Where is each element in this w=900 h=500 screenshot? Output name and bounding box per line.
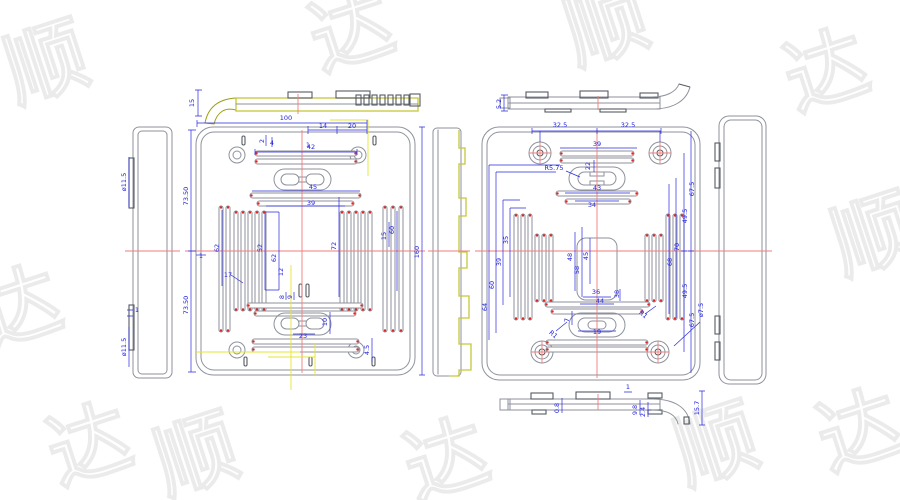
watermark-glyph: 顺 [663,387,771,500]
dimension-label: 100 [280,114,292,122]
slat-end-marker [362,211,364,213]
dimension-label: 32.5 [621,121,635,129]
dimension-label: 60 [388,226,396,234]
slat-end-marker [400,329,402,331]
slat-end-marker [360,304,362,306]
dimension-label: 49.5 [681,284,689,298]
dimension-label: 45 [582,252,590,260]
slat-end-marker [249,211,251,213]
dimension-label: 52 [256,244,264,252]
dimension-label: 160 [413,246,421,258]
slat-end-marker [529,317,531,319]
dimension-label: 4.5 [363,345,371,355]
watermark-glyph: 达 [36,387,144,500]
slat-end-marker [355,211,357,213]
dimension-label: R5.75 [545,164,564,172]
slat-end-marker [660,299,662,301]
part2-top-profile-view [500,84,690,112]
slat-end-marker [263,211,265,213]
dimension-label: 70 [673,243,681,251]
dimension-label: 17 [224,271,232,279]
dimension-label: 15 [380,232,388,240]
slat-end-marker [550,234,552,236]
dimension-label: 20 [348,122,356,130]
dimension-label: ø11.5 [120,173,128,191]
slat-end-marker [355,308,357,310]
slat-end-marker [674,317,676,319]
dimension-label: 43 [593,184,601,192]
slat-end-marker [227,206,229,208]
slat-end-marker [522,317,524,319]
slat-end-markers [220,152,683,350]
slat-end-marker [257,202,259,204]
slat-end-marker [529,214,531,216]
slat-end-marker [645,341,647,343]
dimension-label: 35 [502,236,510,244]
dimension-label: 19 [593,328,601,336]
slat-end-marker [356,340,358,342]
slat-end-marker [250,194,252,196]
watermark-glyph: 达 [393,402,501,500]
slat-end-marker [247,304,249,306]
dimension-label: 9.8 [631,405,639,415]
slat-end-marker [681,317,683,319]
slat-end-marker [341,308,343,310]
dimension-label: 38 [613,290,621,298]
slat-end-marker [550,299,552,301]
slat-end-marker [220,206,222,208]
dimension-label: 8 [278,295,286,299]
slat-end-marker [220,329,222,331]
dimension-label: 68 [666,258,674,266]
slat-end-marker [543,234,545,236]
slat-end-marker [543,299,545,301]
slat-end-marker [351,202,353,204]
slat-end-marker [565,200,567,202]
part1-front-view [185,120,425,390]
dimension-label: 67.5 [688,313,696,327]
dimension-label: 45 [309,183,317,191]
slat-end-marker [358,194,360,196]
slat-end-marker [369,211,371,213]
dimension-label: 48 [566,253,574,261]
slat-end-marker [546,341,548,343]
slat-end-marker [242,211,244,213]
slat-end-marker [235,308,237,310]
watermark-glyph: 达 [0,250,73,367]
dimension-label: 72 [330,242,338,250]
dimension-label: 15.7 [693,401,701,415]
slat-end-marker [235,211,237,213]
slat-end-marker [362,308,364,310]
dimension-label: 58 [573,266,581,274]
slat-end-marker [631,152,633,154]
dimension-label: ø11.5 [120,338,128,356]
slat-end-marker [369,308,371,310]
dimension-label: 64 [481,303,489,311]
slat-end-marker [640,310,642,312]
dimension-label: 1 [135,306,139,314]
slat-end-marker [249,308,251,310]
dimension-label: 23 [299,332,307,340]
slat-end-marker [646,299,648,301]
watermark-glyph: 顺 [553,0,661,84]
dimension-label: 0.8 [553,403,561,413]
slat-end-marker [392,329,394,331]
dimension-label: 12 [277,268,285,276]
dimension-label: 9 [286,295,294,299]
slat-end-marker [546,348,548,350]
slat-end-marker [384,206,386,208]
slat-end-marker [384,329,386,331]
dimension-label: 42 [307,143,315,151]
part2-side-view-inner [428,128,471,376]
slat-end-marker [645,348,647,350]
dimension-label: 1 [199,252,203,260]
slat-end-marker [227,329,229,331]
dimension-label: 39 [593,140,601,148]
slat-end-marker [515,214,517,216]
dimension-label: 67.5 [688,182,696,196]
slat-end-marker [631,159,633,161]
dimension-label: 44 [596,297,604,305]
dimension-label: 39 [495,258,503,266]
dimension-label: ø7.5 [697,303,705,317]
dimension-label: 73.50 [182,187,190,206]
part1-side-view [125,127,180,378]
slat-end-marker [255,160,257,162]
slat-end-marker [354,152,356,154]
slat-end-marker [536,234,538,236]
watermark-glyph: 达 [773,13,881,130]
dimension-label: 7 [563,318,571,322]
dimension-label: 10 [321,318,329,326]
slat-end-marker [635,192,637,194]
dimension-label: 39 [307,199,315,207]
slat-end-marker [353,312,355,314]
dimension-label: 22 [584,162,592,170]
slat-end-marker [256,211,258,213]
slat-end-marker [522,214,524,216]
slat-end-marker [354,160,356,162]
dimension-label: 2 [258,139,266,143]
slat-end-marker [653,299,655,301]
slat-end-marker [348,308,350,310]
dimension-label: 60 [488,281,496,289]
dimension-label: 14 [319,122,327,130]
slat-end-marker [242,308,244,310]
dimension-label: 36 [592,288,600,296]
slat-end-marker [254,312,256,314]
slat-end-marker [252,348,254,350]
watermark-glyph: 顺 [143,397,251,500]
part2-bottom-profile-view [500,392,690,424]
dimension-label: 1 [626,383,630,391]
dimension-label: 62 [270,254,278,262]
slat-end-marker [667,214,669,216]
slat-end-marker [660,234,662,236]
slat-end-marker [255,152,257,154]
slat-end-marker [647,303,649,305]
dimension-label: 2.4 [639,407,647,417]
slat-end-marker [646,234,648,236]
slat-end-marker [681,214,683,216]
slat-end-marker [628,200,630,202]
cad-drawing-canvas: 顺达顺达达顺顺达顺达达 [0,0,900,500]
slat-end-marker [348,211,350,213]
watermark-glyph: 达 [298,0,406,90]
watermark-glyph: 顺 [820,177,900,294]
slat-end-marker [560,152,562,154]
watermark-glyph: 达 [806,373,900,490]
part1-top-profile-view [205,91,420,124]
slat-end-marker [392,206,394,208]
slat-end-marker [515,317,517,319]
dimension-label: 62 [213,244,221,252]
watermark-glyph: 顺 [0,5,100,122]
slat-end-marker [560,159,562,161]
slat-end-marker [653,234,655,236]
dimension-label: 32.5 [553,121,567,129]
dimension-label: 4 [270,139,274,147]
slat-end-marker [545,303,547,305]
watermark-layer: 顺达顺达达顺顺达顺达达 [0,0,900,500]
slat-end-marker [556,192,558,194]
part2-side-view-outer [712,116,772,384]
dimension-label: R1 [547,329,559,341]
slat-end-marker [341,211,343,213]
slat-end-marker [674,214,676,216]
dimension-label: 15 [188,99,196,107]
slat-end-marker [252,340,254,342]
slat-end-marker [263,308,265,310]
slat-end-marker [400,206,402,208]
slat-end-marker [667,317,669,319]
slat-end-marker [256,308,258,310]
dimension-label: 5.2 [495,99,503,109]
cad-drawing-screenshot: 顺达顺达达顺顺达顺达达 [0,0,900,500]
slat-end-marker [551,310,553,312]
dimension-label: 34 [588,201,596,209]
slat-end-marker [356,348,358,350]
slat-end-marker [536,299,538,301]
dimension-label: 73.50 [182,296,190,315]
